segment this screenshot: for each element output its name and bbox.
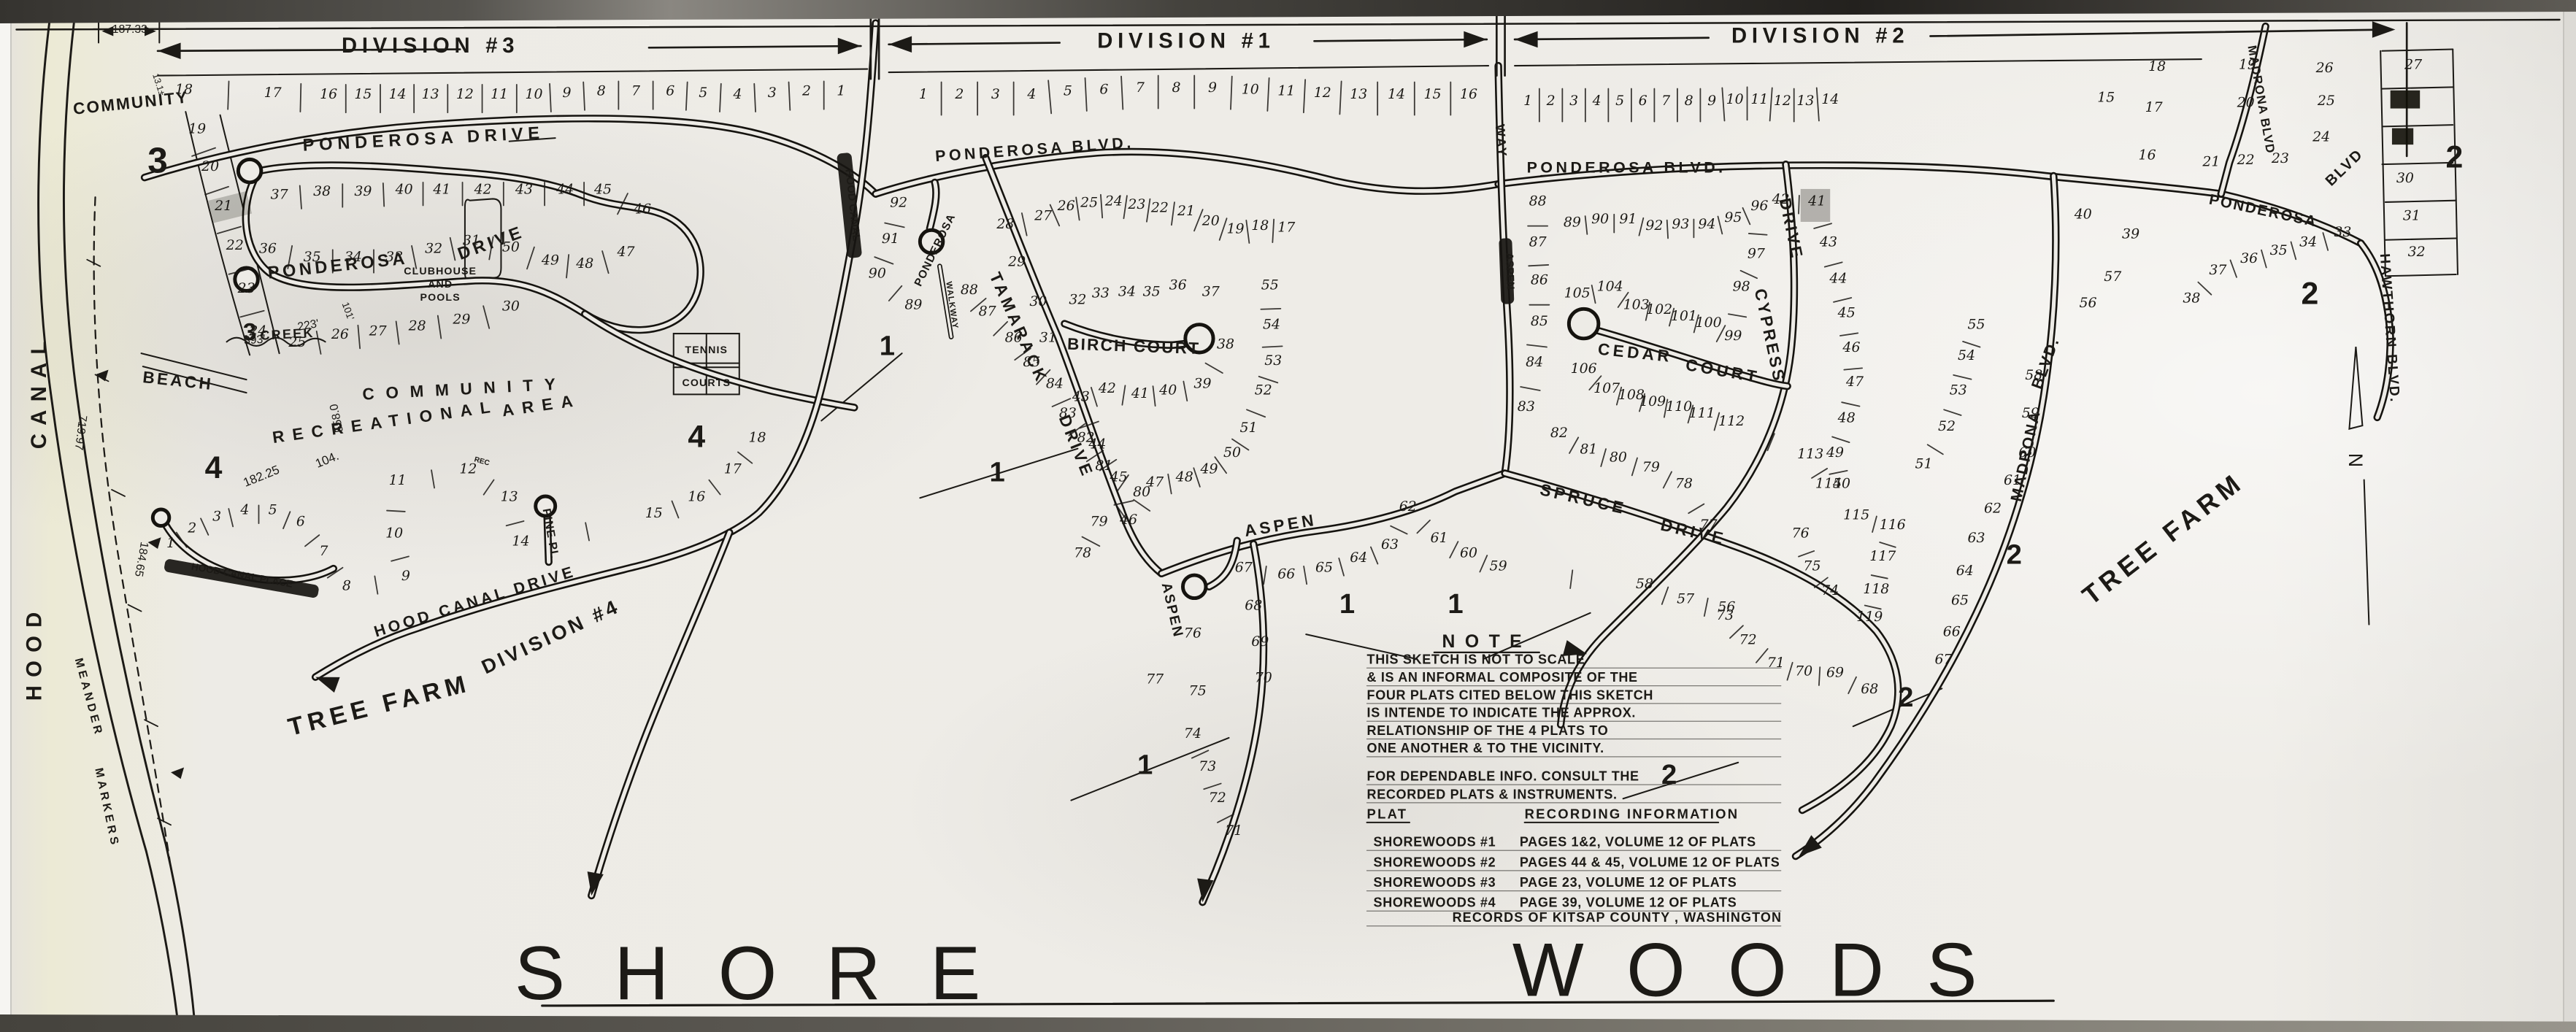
measurement-label: 182.25	[242, 463, 282, 490]
lot-number: 76	[1184, 625, 1202, 642]
map-line	[1623, 763, 1739, 799]
note-line: IS INTENDE TO INDICATE THE APPROX.	[1367, 706, 1637, 720]
division-title: DIVISION #2	[1731, 25, 1909, 48]
map-line	[317, 331, 321, 354]
map-line	[1121, 77, 1123, 109]
lot-number: 6	[296, 514, 305, 530]
lot-number: 25	[2317, 93, 2335, 109]
map-line	[450, 238, 455, 261]
lot-number: 7	[319, 543, 328, 559]
lot-number: 15	[354, 86, 372, 102]
lot-number: 40	[395, 182, 413, 198]
lot-number: 12	[1314, 85, 1331, 101]
lot-number: 33	[2334, 224, 2351, 240]
lot-number: 87	[1529, 234, 1547, 250]
map-line	[240, 311, 264, 317]
map-line	[17, 20, 2560, 30]
map-line	[1632, 458, 1637, 476]
lot-number: 54	[1958, 347, 1975, 363]
plat-number-marker: 2	[2446, 140, 2464, 175]
map-line	[1022, 213, 1027, 236]
map-line	[2261, 250, 2267, 268]
lot-number: 40	[2074, 206, 2092, 222]
map-line	[527, 247, 534, 269]
map-line	[889, 66, 1488, 72]
map-line	[507, 521, 524, 525]
lot-number: 46	[1842, 339, 1860, 355]
lot-number: 66	[1277, 566, 1295, 582]
lot-number: 43	[515, 182, 533, 198]
map-line	[228, 509, 233, 526]
lot-number: 90	[1591, 211, 1609, 227]
lot-number: 73	[1199, 758, 1216, 774]
lot-number: 5	[699, 85, 707, 101]
arrowhead	[1515, 31, 1538, 48]
lot-number: 27	[369, 323, 387, 339]
lot-number: 69	[1826, 665, 1844, 681]
arrowhead	[158, 43, 181, 60]
map-line	[686, 82, 688, 110]
lot-number: 109	[1639, 393, 1666, 409]
map-line	[396, 321, 399, 344]
lot-number: 65	[1951, 593, 1969, 609]
lot-number: 91	[882, 231, 899, 247]
lot-number: 104	[1597, 279, 1623, 295]
note-table-header: RECORDING INFORMATION	[1525, 806, 1739, 821]
street-label: PONDEROSA	[2207, 192, 2318, 231]
map-line	[205, 187, 228, 195]
measurement-label: 719.97	[72, 415, 89, 451]
lot-number: 4	[1592, 93, 1602, 109]
note-line: THIS SKETCH IS NOT TO SCALE	[1367, 652, 1585, 667]
map-line	[602, 251, 609, 273]
lot-number: 27	[1034, 208, 1052, 224]
lot-number: 54	[1263, 316, 1280, 332]
street-label: DRIVE	[455, 223, 527, 264]
map-line	[2364, 480, 2369, 624]
map-line	[94, 197, 171, 868]
lot-number: 74	[1184, 725, 1202, 742]
lot-number: 48	[575, 255, 593, 272]
map-line	[1085, 78, 1087, 111]
lot-number: 41	[1807, 193, 1826, 209]
lot-number: 13	[501, 489, 518, 505]
lot-number: 55	[1967, 316, 1985, 332]
lot-number: 38	[2183, 290, 2200, 306]
lot-number: 28	[996, 216, 1014, 232]
map-line	[305, 535, 319, 546]
street-label: ASPEN	[1503, 253, 1516, 290]
map-line	[1515, 38, 1709, 39]
lot-number: 15	[1424, 86, 1442, 102]
lot-number: 96	[1750, 198, 1768, 214]
map-line	[391, 556, 409, 561]
lot-number: 13	[422, 86, 439, 102]
lot-number: 68	[1861, 681, 1878, 697]
lot-number: 38	[313, 183, 331, 199]
map-line	[283, 512, 290, 528]
lot-number: 29	[452, 312, 470, 328]
lot-number: 102	[1646, 301, 1672, 317]
map-line	[1168, 474, 1172, 494]
map-line	[1153, 386, 1155, 406]
measurement-label: 184.65	[132, 541, 150, 578]
lot-number: 22	[2237, 152, 2255, 168]
map-line	[1161, 473, 1504, 573]
cul-de-sac	[1569, 309, 1599, 339]
map-line	[383, 183, 384, 207]
lot-number: 84	[1526, 354, 1543, 370]
map-line	[1963, 342, 1980, 347]
map-line	[1799, 551, 1814, 557]
lot-number: 18	[2148, 58, 2166, 74]
lot-number: 13	[1796, 93, 1814, 109]
lot-number: 19	[1226, 221, 1244, 237]
lot-number: 20	[2237, 94, 2255, 110]
map-line	[720, 84, 721, 112]
plat-number-marker: 2	[2007, 539, 2022, 570]
lot-number: 119	[1856, 609, 1883, 625]
map-line	[1770, 88, 1772, 120]
map-line	[1515, 59, 2202, 66]
place-label: CANAL	[28, 334, 51, 450]
lot-number: 112	[1718, 413, 1745, 429]
map-line	[1930, 30, 2390, 36]
lot-number: 21	[1177, 203, 1195, 219]
map-line	[145, 720, 158, 726]
map-line	[821, 353, 901, 420]
lot-number: 70	[1255, 669, 1272, 685]
map-line	[1872, 575, 1888, 579]
lot-number: 39	[354, 183, 372, 199]
lot-number: 75	[1189, 682, 1207, 698]
map-line	[358, 326, 360, 349]
lot-number: 62	[1399, 498, 1417, 515]
lot-number: 92	[890, 195, 907, 211]
map-line	[1520, 387, 1540, 390]
map-line	[1339, 558, 1344, 576]
lot-number: 67	[1934, 652, 1952, 668]
lot-number: 47	[616, 244, 634, 260]
lot-number: 4	[1026, 86, 1036, 102]
lot-number: 114	[1815, 476, 1842, 492]
note-line: FOR DEPENDABLE INFO. CONSULT THE	[1367, 769, 1639, 784]
lot-number: 111	[1689, 405, 1715, 421]
lot-number: 11	[1750, 91, 1768, 107]
street-label: BLVD	[2323, 146, 2367, 189]
map-line	[1829, 471, 1847, 474]
lot-number: 26	[331, 326, 349, 342]
map-line	[2349, 347, 2362, 429]
lot-number: 101	[1671, 308, 1697, 324]
lot-number: 44	[1829, 270, 1847, 286]
place-label: CLUBHOUSE	[404, 266, 477, 277]
lot-number: 21	[2202, 153, 2220, 169]
lot-number: 50	[1223, 444, 1241, 461]
map-line	[585, 523, 589, 540]
lot-number: 118	[1863, 581, 1889, 597]
arrowhead	[2372, 21, 2396, 38]
lot-number: 89	[1564, 215, 1581, 231]
paper-edge-right	[2563, 0, 2576, 1032]
map-line	[1880, 542, 1896, 547]
map-line	[1840, 333, 1858, 336]
map-line	[672, 501, 679, 518]
plat-number-marker: 4	[205, 450, 223, 485]
lot-number: 23	[1127, 196, 1145, 212]
lot-number: 9	[1707, 93, 1716, 109]
lot-number: 6	[1099, 81, 1108, 97]
lot-number: 88	[961, 282, 978, 298]
plat-map: DIVISION #3DIVISION #1DIVISION #21817161…	[0, 0, 2576, 1032]
lot-number: 8	[1172, 80, 1180, 96]
lot-number: 24	[2312, 129, 2330, 145]
street-label: PINE PL	[540, 507, 561, 559]
map-line	[1832, 436, 1849, 442]
lot-number: 71	[1225, 823, 1242, 839]
plat-number-marker: 4	[688, 419, 705, 454]
lot-number: 8	[342, 577, 351, 593]
plat-number-marker: 2	[1898, 682, 1913, 713]
place-label: RECREATIONAL	[272, 397, 500, 447]
map-line	[1569, 437, 1578, 453]
note-table-plat: SHOREWOODS #4	[1374, 896, 1496, 910]
place-label: MARKERS	[92, 767, 121, 849]
lot-number: 72	[1209, 790, 1226, 806]
lot-number: 77	[1146, 671, 1164, 688]
lot-number: 31	[2403, 208, 2421, 224]
lot-number: 13	[1350, 86, 1367, 102]
street-label: WAY	[1493, 124, 1510, 158]
place-label: TREE FARM	[2077, 466, 2250, 611]
lot-number: 4	[733, 86, 742, 102]
map-line	[387, 511, 405, 512]
lot-number: 53	[1264, 353, 1282, 369]
map-line	[1123, 196, 1127, 218]
map-line	[1264, 566, 1266, 584]
lot-number: 64	[1350, 550, 1367, 566]
lot-number: 79	[1642, 459, 1660, 475]
lot-number: 5	[269, 502, 277, 518]
map-line	[1272, 220, 1274, 243]
lot-number: 2	[187, 520, 196, 536]
lot-number: 1	[166, 535, 175, 551]
lot-number: 41	[432, 182, 450, 198]
lot-number: 14	[1388, 86, 1405, 102]
lot-number: 91	[1619, 211, 1637, 227]
map-line	[1183, 382, 1187, 401]
lot-number: 16	[320, 86, 337, 102]
lot-number: 89	[904, 296, 922, 312]
lot-number: 80	[1610, 450, 1627, 466]
map-line	[2291, 242, 2296, 259]
lot-number: 51	[1239, 420, 1257, 436]
plat-number-marker: 2	[1661, 759, 1677, 790]
map-line	[201, 518, 208, 535]
lot-number: 57	[2104, 269, 2121, 285]
map-line	[228, 81, 228, 109]
lot-number: 17	[264, 85, 282, 101]
note-table-recording: PAGES 44 & 45, VOLUME 12 OF PLATS	[1520, 855, 1780, 869]
lot-number: 41	[1131, 385, 1149, 401]
note-table-header: PLAT	[1367, 806, 1408, 821]
lot-number: 90	[869, 266, 886, 282]
lot-number: 17	[1277, 219, 1295, 235]
map-line	[1688, 504, 1704, 514]
map-line	[1749, 234, 1767, 235]
lot-number: 117	[1869, 548, 1896, 564]
lot-number: 73	[1716, 607, 1734, 623]
lot-number: 43	[1819, 234, 1837, 250]
map-line	[300, 185, 301, 209]
lot-number: 11	[491, 86, 508, 102]
lot-number: 63	[1381, 536, 1399, 552]
lot-number: 10	[385, 525, 403, 541]
map-line	[1122, 385, 1125, 405]
street-label: SPRUCE	[1538, 480, 1628, 518]
map-line	[158, 69, 867, 76]
plat-number-marker: 1	[1339, 588, 1355, 620]
map-line	[1814, 223, 1831, 228]
map-line	[1247, 409, 1265, 417]
map-line	[709, 480, 720, 495]
lot-number: 116	[1880, 517, 1906, 533]
lot-number: 28	[408, 318, 426, 334]
lot-number: 103	[1623, 296, 1650, 312]
map-line	[1729, 314, 1746, 317]
lot-number: 17	[2145, 99, 2163, 115]
lot-number: 7	[1136, 80, 1145, 96]
plat-number-marker: 1	[880, 330, 895, 361]
note-table-recording: PAGE 23, VOLUME 12 OF PLATS	[1520, 875, 1737, 890]
note-line: & IS AN INFORMAL COMPOSITE OF THE	[1367, 670, 1638, 685]
lot-number: 38	[1217, 336, 1234, 352]
place-label: POOLS	[420, 292, 461, 304]
lot-number: 56	[2080, 295, 2097, 311]
map-line	[484, 480, 494, 494]
lot-number: 22	[1150, 199, 1169, 215]
map-line	[1231, 77, 1232, 109]
lot-number: 97	[1748, 245, 1765, 261]
lot-number: 24	[1104, 193, 1123, 209]
lot-number: 3	[768, 85, 777, 101]
cul-de-sac	[238, 159, 261, 182]
shore-marker	[171, 767, 184, 779]
map-line	[1480, 555, 1487, 572]
map-line	[1206, 363, 1223, 374]
plat-number-marker: 2	[2302, 277, 2319, 312]
cul-de-sac	[1183, 575, 1206, 598]
compass-n-label: N	[2345, 453, 2367, 468]
map-line	[1817, 88, 1819, 120]
lot-number: 48	[1837, 410, 1856, 426]
lot-number: 86	[1531, 272, 1548, 288]
map-line	[1172, 202, 1174, 225]
lot-number: 87	[979, 303, 996, 319]
lot-number: 30	[502, 299, 520, 315]
lot-number: 16	[688, 489, 705, 505]
lot-number: 83	[1518, 398, 1535, 415]
lot-number: 23	[237, 280, 255, 296]
lot-number: 19	[188, 120, 206, 136]
map-line	[1091, 388, 1097, 407]
lot-number: 51	[1915, 456, 1932, 472]
lot-number: 32	[1069, 292, 1086, 308]
map-line	[591, 533, 729, 896]
note-line: RELATIONSHIP OF THE 4 PLATS TO	[1367, 723, 1609, 738]
lot-number: 70	[1795, 663, 1812, 679]
lot-number: 34	[1118, 283, 1136, 299]
measurement-label: 104.	[313, 449, 341, 471]
lot-number: 59	[1490, 558, 1507, 574]
lot-number: 6	[1639, 93, 1648, 109]
map-line	[112, 490, 125, 496]
map-line	[2382, 125, 2453, 126]
lot-number: 14	[389, 86, 407, 102]
map-line	[1371, 547, 1377, 564]
map-line	[1953, 375, 1971, 380]
map-line	[1756, 649, 1768, 663]
street-label: COURT	[1684, 355, 1761, 386]
paper-edge-left	[0, 0, 12, 1032]
lot-number: 5	[1615, 93, 1624, 109]
map-line	[1147, 199, 1150, 222]
lot-number: 8	[1685, 93, 1693, 109]
lot-number: 7	[631, 83, 640, 99]
lot-number: 95	[1724, 209, 1742, 226]
street-label: MADRONA	[2007, 409, 2044, 504]
lot-number: 7	[1661, 93, 1670, 109]
lot-number: 11	[389, 472, 407, 488]
lot-number: 46	[633, 201, 651, 217]
place-label: COURTS	[682, 377, 731, 389]
map-line	[1134, 500, 1150, 511]
plat-number-marker: 1	[1447, 588, 1463, 620]
lot-number: 12	[1774, 93, 1791, 109]
lot-number: 37	[2209, 262, 2226, 278]
map-line	[583, 82, 585, 110]
map-line	[128, 605, 142, 612]
screenshot-root: SHORE WOODS DIVISION #3DIVISION #1DIVISI…	[0, 0, 2576, 1032]
lot-number: 81	[1095, 458, 1112, 474]
lot-number: 55	[1261, 277, 1279, 293]
map-line	[550, 84, 551, 112]
lot-number: 21	[214, 198, 232, 214]
lot-number: 47	[1845, 374, 1864, 390]
lot-number: 26	[1057, 198, 1075, 214]
lot-number: 3	[212, 509, 221, 525]
lot-number: 3	[1569, 93, 1578, 109]
arrowhead	[838, 38, 861, 55]
map-line	[1848, 677, 1856, 694]
lot-number: 39	[1193, 375, 1211, 391]
lot-number: 3	[991, 86, 1000, 102]
lot-number: 49	[1199, 461, 1218, 477]
map-line	[1246, 220, 1249, 243]
map-line	[1220, 218, 1227, 240]
lot-number: 94	[1698, 216, 1715, 232]
map-line	[1667, 220, 1668, 239]
place-label: BEACH	[142, 368, 214, 393]
lot-number: 53	[1950, 382, 1967, 398]
lot-number: 2	[1546, 93, 1556, 109]
lot-number: 58	[1636, 576, 1653, 592]
title-woods: WOODS	[1512, 927, 2020, 1012]
map-line	[1263, 346, 1283, 347]
note-title: NOTE	[1442, 632, 1531, 652]
map-line	[438, 316, 442, 339]
lot-number: 74	[1821, 582, 1839, 598]
